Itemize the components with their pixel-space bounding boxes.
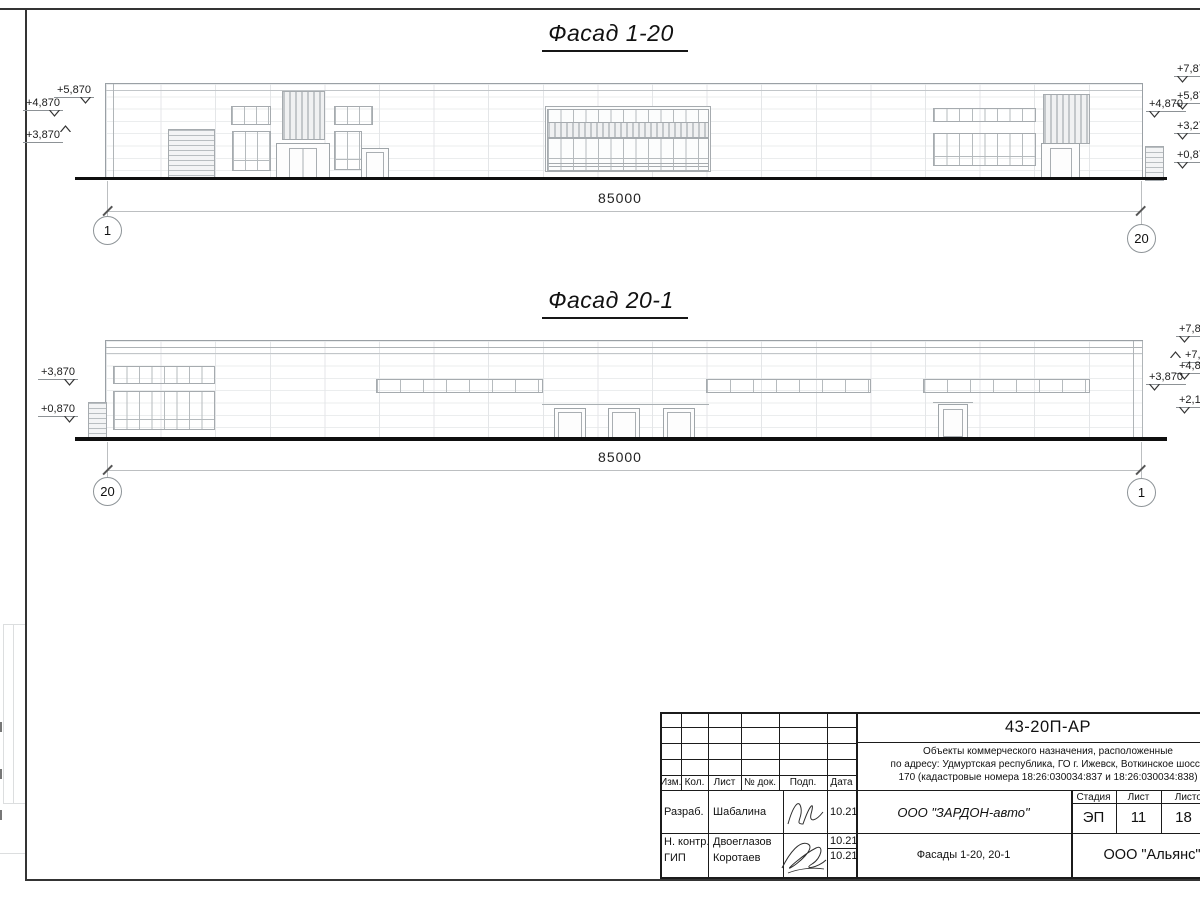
margin-strip-line (3, 803, 25, 804)
titleblock-line (660, 833, 1200, 834)
col-podp: Подп. (779, 777, 827, 788)
col-list: Лист (708, 777, 741, 788)
glazing-top-row (547, 109, 709, 123)
door (1041, 143, 1080, 179)
dimension-label: 85000 (460, 449, 780, 465)
door-leaf (558, 412, 582, 438)
titleblock-line (827, 848, 856, 849)
door (938, 404, 968, 439)
parapet-line (106, 347, 1142, 348)
col-izm: Изм. (660, 777, 681, 788)
sheet-value: 11 (1116, 809, 1161, 826)
level-mark: +3,870 (23, 129, 63, 143)
exterior-ladder (88, 402, 107, 438)
row-role: ГИП (664, 852, 686, 864)
extension-line (107, 442, 108, 478)
margin-strip-line (3, 624, 25, 625)
level-mark: +7,87 (1174, 63, 1200, 77)
row-role: Н. контр. (664, 836, 709, 848)
window-band (706, 379, 871, 393)
margin-strip-mark (0, 769, 2, 779)
door-leaf (289, 148, 317, 178)
door-leaf (612, 412, 636, 438)
facade-1-20-title: Фасад 1-20 (542, 20, 688, 52)
drawing-title: Фасады 1-20, 20-1 (856, 849, 1071, 861)
window-band (933, 108, 1036, 122)
double-door (554, 408, 586, 439)
project-description-line2: по адресу: Удмуртская республика, ГО г. … (856, 759, 1200, 770)
stage-label: Стадия (1071, 792, 1116, 803)
door-leaf (366, 152, 384, 178)
exterior-ladder (1145, 146, 1164, 181)
titleblock-line (856, 742, 1200, 743)
double-door (608, 408, 640, 439)
parapet-line (106, 353, 1142, 354)
company-name: ООО "ЗАРДОН-авто" (856, 805, 1071, 820)
level-mark: +4,870 (23, 97, 63, 111)
level-mark: +3,27 (1174, 120, 1200, 134)
margin-strip-line (3, 624, 4, 804)
row-date: 10.21 (830, 806, 858, 818)
door (361, 148, 389, 179)
level-mark: +3,870 (38, 366, 78, 380)
project-description-line1: Объекты коммерческого назначения, распол… (856, 746, 1200, 757)
window-band (933, 133, 1036, 166)
window (334, 131, 362, 170)
window-band (334, 106, 373, 125)
window (232, 131, 271, 171)
row-date: 10.21 (830, 835, 858, 847)
window (113, 391, 215, 430)
axis-bubble-1: 1 (93, 216, 122, 245)
door-leaf (667, 412, 691, 438)
level-mark: +5,870 (54, 84, 94, 98)
entrance-doorway (276, 143, 330, 179)
axis-bubble-1: 1 (1127, 478, 1156, 507)
doc-number: 43-20П-АР (856, 718, 1200, 737)
curtain-wall-ribbed (282, 91, 325, 140)
ground-line (75, 437, 1167, 441)
extension-line (1141, 181, 1142, 225)
margin-strip-mark (0, 722, 2, 732)
col-doc: № док. (741, 777, 779, 788)
glazing-base-row (547, 163, 709, 171)
ground-line (75, 177, 1167, 180)
curtain-wall-ribbed (1043, 94, 1090, 144)
col-data: Дата (827, 777, 856, 788)
margin-strip-mark (0, 810, 2, 820)
margin-strip-line (13, 624, 14, 804)
stage-value: ЭП (1071, 809, 1116, 826)
corner-pilaster (1133, 341, 1143, 438)
level-mark: +3,870 (1146, 371, 1186, 385)
margin-strip-line (0, 853, 25, 854)
window-band (113, 366, 215, 384)
roller-gate (168, 129, 215, 179)
extension-line (107, 181, 108, 219)
row-name: Шабалина (713, 806, 766, 818)
project-description-line3: 170 (кадастровые номера 18:26:030034:837… (856, 772, 1200, 783)
sheets-label: Листов (1161, 792, 1200, 803)
level-mark: +4,870 (1146, 98, 1186, 112)
level-mark: +0,870 (38, 403, 78, 417)
titleblock-line (708, 712, 709, 879)
dimension-label: 85000 (460, 190, 780, 206)
facade-20-1-elevation (105, 340, 1143, 439)
signature (778, 834, 830, 876)
entrance-canopy (542, 404, 709, 405)
level-mark: +2,1 (1176, 394, 1200, 408)
titleblock-line (1071, 790, 1073, 879)
axis-bubble-20: 20 (1127, 224, 1156, 253)
dimension-line (107, 211, 1141, 212)
sheets-value: 18 (1161, 809, 1200, 826)
frame-top (0, 8, 1200, 10)
titleblock-line (1071, 803, 1200, 804)
parapet-line (106, 90, 1142, 91)
door-leaf (943, 409, 963, 437)
frame-bottom (25, 879, 1200, 881)
signature (784, 796, 826, 830)
door-canopy (933, 402, 973, 403)
level-mark: +7,8 (1176, 323, 1200, 337)
window-band (231, 106, 271, 125)
contractor-name: ООО "Альянс" (1071, 847, 1200, 863)
window-band (376, 379, 543, 393)
drawing-sheet: Фасад 1-20 (0, 0, 1200, 900)
level-mark: +0,87 (1174, 149, 1200, 163)
corner-pilaster (106, 84, 114, 178)
row-name: Двоеглазов (713, 836, 771, 848)
double-door (663, 408, 695, 439)
col-kol: Кол. (681, 777, 708, 788)
axis-bubble-20: 20 (93, 477, 122, 506)
facade-20-1-title: Фасад 20-1 (542, 287, 688, 319)
glazing-ribbed-band (547, 122, 709, 138)
row-name: Коротаев (713, 852, 761, 864)
row-date: 10.21 (830, 850, 858, 862)
central-glazing (545, 106, 711, 172)
titleblock-line (660, 877, 1200, 879)
facade-1-20-elevation (105, 83, 1143, 179)
sheet-label: Лист (1116, 792, 1161, 803)
dimension-line (107, 470, 1141, 471)
door-leaf (1050, 148, 1072, 178)
row-role: Разраб. (664, 806, 704, 818)
titleblock-line (660, 712, 662, 879)
titleblock-line (660, 790, 1200, 791)
window-band (923, 379, 1090, 393)
extension-line (1141, 442, 1142, 479)
